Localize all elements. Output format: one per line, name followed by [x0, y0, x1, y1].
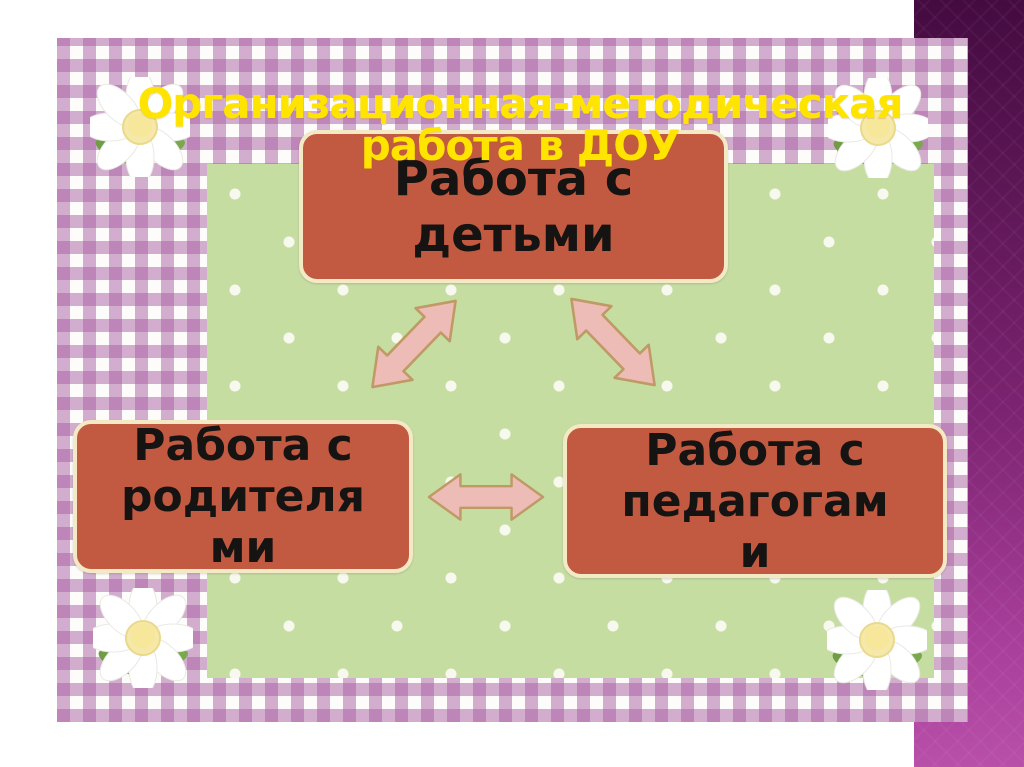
- node-work-with-parents: Работа с родителя ми: [73, 420, 413, 573]
- slide-stage: Работа с детьми Работа с родителя ми Раб…: [0, 0, 1024, 767]
- node-work-with-teachers: Работа с педагогам и: [563, 424, 947, 578]
- daisy-flower-icon: [93, 588, 193, 688]
- node-label-line: Работа с: [645, 425, 864, 476]
- double-arrow-parents-teachers-icon: [427, 466, 545, 528]
- node-label-line: Работа с: [133, 420, 352, 471]
- node-label-line: педагогам: [621, 476, 888, 527]
- slide-title-line-2: работа в ДОУ: [80, 125, 960, 167]
- node-label-line: родителя: [121, 471, 365, 522]
- node-label-line: и: [740, 527, 771, 578]
- node-label-line: ми: [210, 522, 277, 573]
- slide-title-line-1: Организационная-методическая: [80, 83, 960, 125]
- daisy-flower-icon: [827, 590, 927, 690]
- slide-title: Организационная-методическая работа в ДО…: [80, 83, 960, 167]
- node-label-line: детьми: [412, 207, 614, 263]
